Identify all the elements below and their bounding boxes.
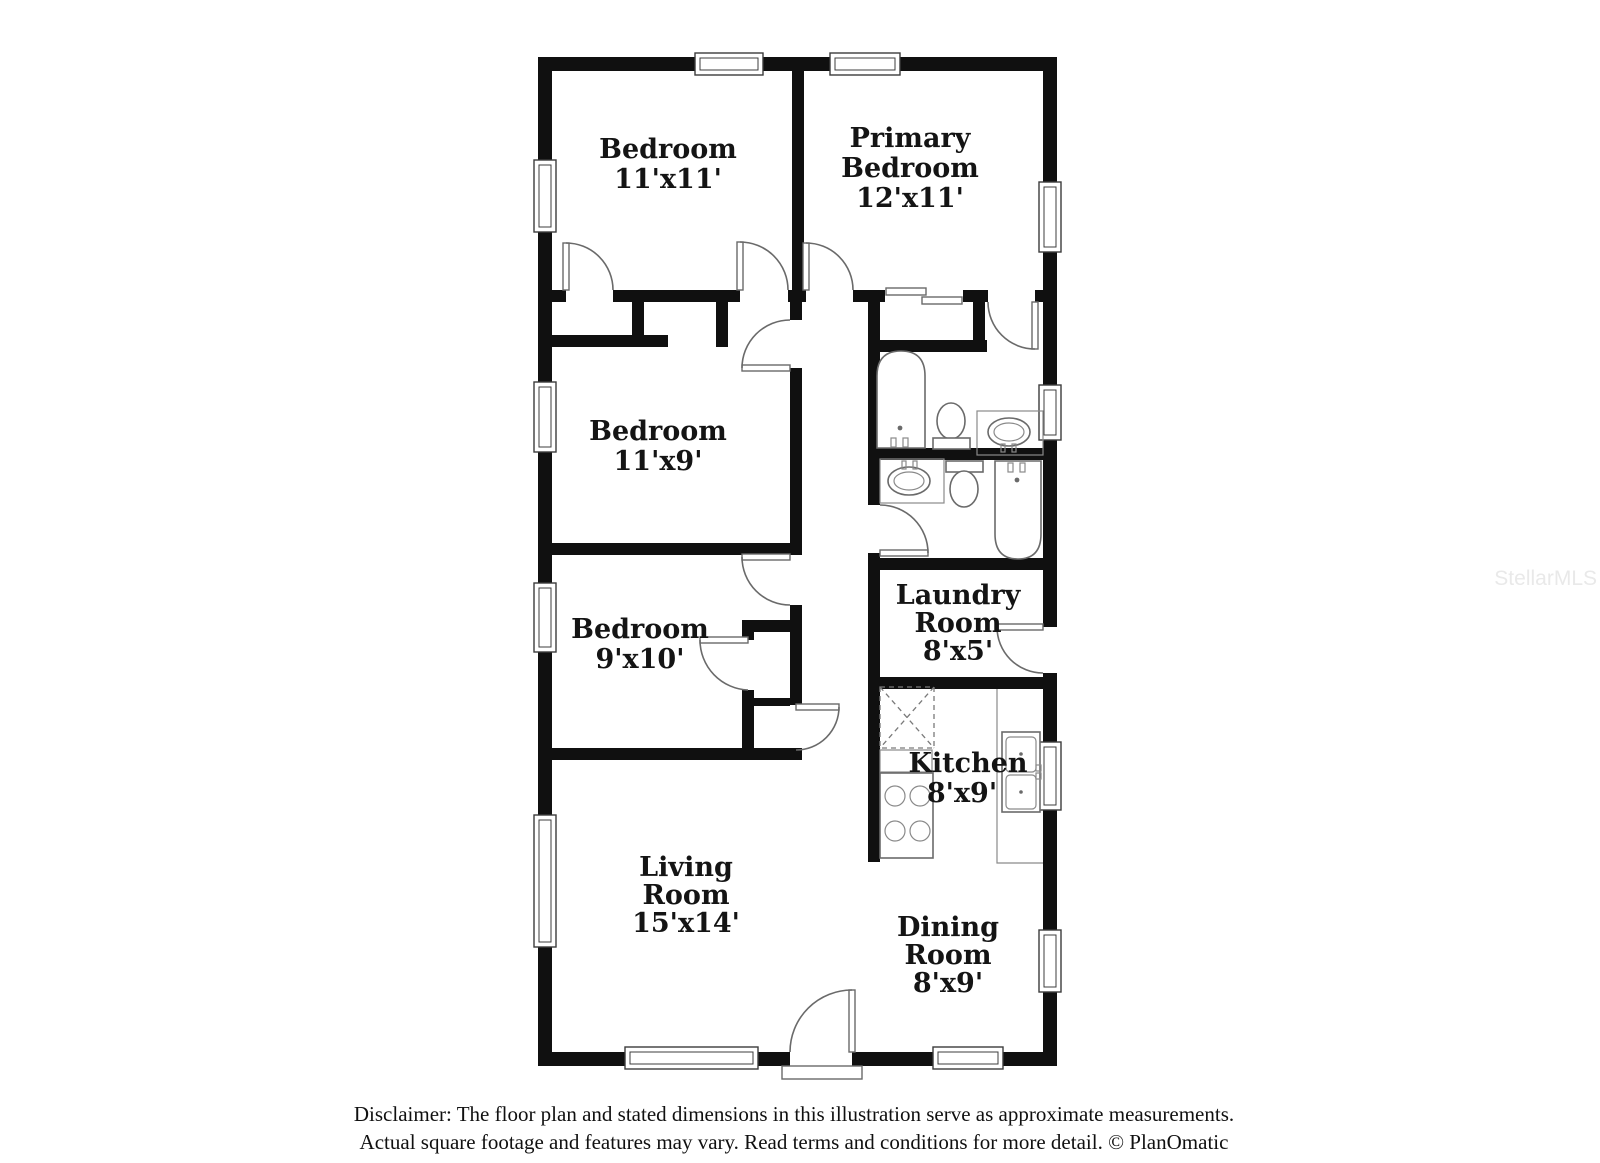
floor-plan-svg: Bedroom 11'x11' Primary Bedroom 12'x11' …: [0, 0, 1600, 1163]
disclaimer: Disclaimer: The floor plan and stated di…: [354, 1102, 1234, 1154]
room-label-primary-dims: 12'x11': [856, 183, 964, 214]
wall-segment: [716, 302, 728, 347]
bathtub-icon: [995, 461, 1041, 559]
wall-segment: [538, 57, 1057, 71]
wall-segment: [973, 302, 985, 340]
room-label-living-dims: 15'x14': [632, 908, 740, 939]
room-label-living-line1: Living: [639, 852, 733, 883]
window: [625, 1047, 758, 1069]
room-label-dining-line2: Room: [904, 940, 991, 971]
toilet-icon: [933, 403, 970, 449]
wall-segment: [868, 340, 987, 352]
room-label-bedroom2-dims: 11'x9': [614, 446, 703, 477]
window: [695, 53, 763, 75]
window: [534, 815, 556, 947]
window: [1039, 930, 1061, 992]
room-label-bedroom1-name: Bedroom: [599, 134, 737, 165]
door: [796, 704, 839, 750]
room-label-primary-line1: Primary: [850, 123, 972, 154]
wall-segment: [792, 71, 804, 290]
room-label-laundry-line1: Laundry: [896, 580, 1022, 611]
door: [880, 505, 928, 556]
room-label-bedroom3-name: Bedroom: [571, 614, 709, 645]
stove-icon: [880, 773, 933, 858]
wall-segment: [644, 335, 668, 347]
toilet-icon: [946, 461, 983, 507]
room-label-kitchen-dims: 8'x9': [927, 778, 997, 809]
wall-segment: [853, 290, 885, 302]
window: [1039, 742, 1061, 810]
window: [830, 53, 900, 75]
wall-segment: [538, 543, 802, 555]
wall-segment: [613, 290, 740, 302]
door: [742, 320, 790, 371]
room-label-kitchen-name: Kitchen: [908, 748, 1027, 779]
bathtub-icon: [877, 351, 925, 448]
disclaimer-line1: Disclaimer: The floor plan and stated di…: [354, 1102, 1234, 1126]
room-label-bedroom3-dims: 9'x10': [596, 644, 685, 675]
floor-plan-page: Bedroom 11'x11' Primary Bedroom 12'x11' …: [0, 0, 1600, 1163]
wall-segment: [868, 558, 1043, 570]
window: [534, 583, 556, 652]
window: [534, 160, 556, 232]
room-label-primary-line2: Bedroom: [841, 153, 979, 184]
sink-icon: [880, 459, 944, 503]
room-label-dining-line1: Dining: [897, 912, 999, 943]
wall-segment: [788, 290, 806, 302]
room-label-bedroom2-name: Bedroom: [589, 416, 727, 447]
sliding-door: [886, 288, 962, 304]
room-label-laundry-dims: 8'x5': [923, 636, 993, 667]
disclaimer-line2: Actual square footage and features may v…: [360, 1130, 1229, 1154]
door: [742, 554, 790, 605]
room-label-living-line2: Room: [642, 880, 729, 911]
wall-segment: [538, 290, 566, 302]
wall-segment: [963, 290, 988, 302]
door: [737, 242, 788, 290]
watermark: StellarMLS: [1494, 567, 1597, 590]
room-label-bedroom1-dims: 11'x11': [614, 164, 722, 195]
wall-segment: [552, 335, 644, 347]
door: [988, 302, 1038, 349]
window: [933, 1047, 1003, 1069]
door: [997, 624, 1057, 673]
wall-segment: [790, 368, 802, 543]
window: [534, 382, 556, 452]
window: [1039, 182, 1061, 252]
wall-segment: [868, 677, 1043, 689]
wall-segment: [754, 698, 790, 706]
wall-segment: [538, 748, 802, 760]
door: [563, 243, 613, 290]
wall-segment: [1035, 290, 1045, 302]
window: [1039, 385, 1061, 440]
refrigerator-icon: [880, 687, 934, 748]
front-door: [782, 990, 862, 1079]
room-label-dining-dims: 8'x9': [913, 968, 983, 999]
room-label-laundry-line2: Room: [914, 608, 1001, 639]
wall-segment: [790, 302, 802, 320]
wall-segment: [742, 690, 754, 748]
door: [803, 243, 853, 290]
wall-segment: [868, 553, 880, 862]
